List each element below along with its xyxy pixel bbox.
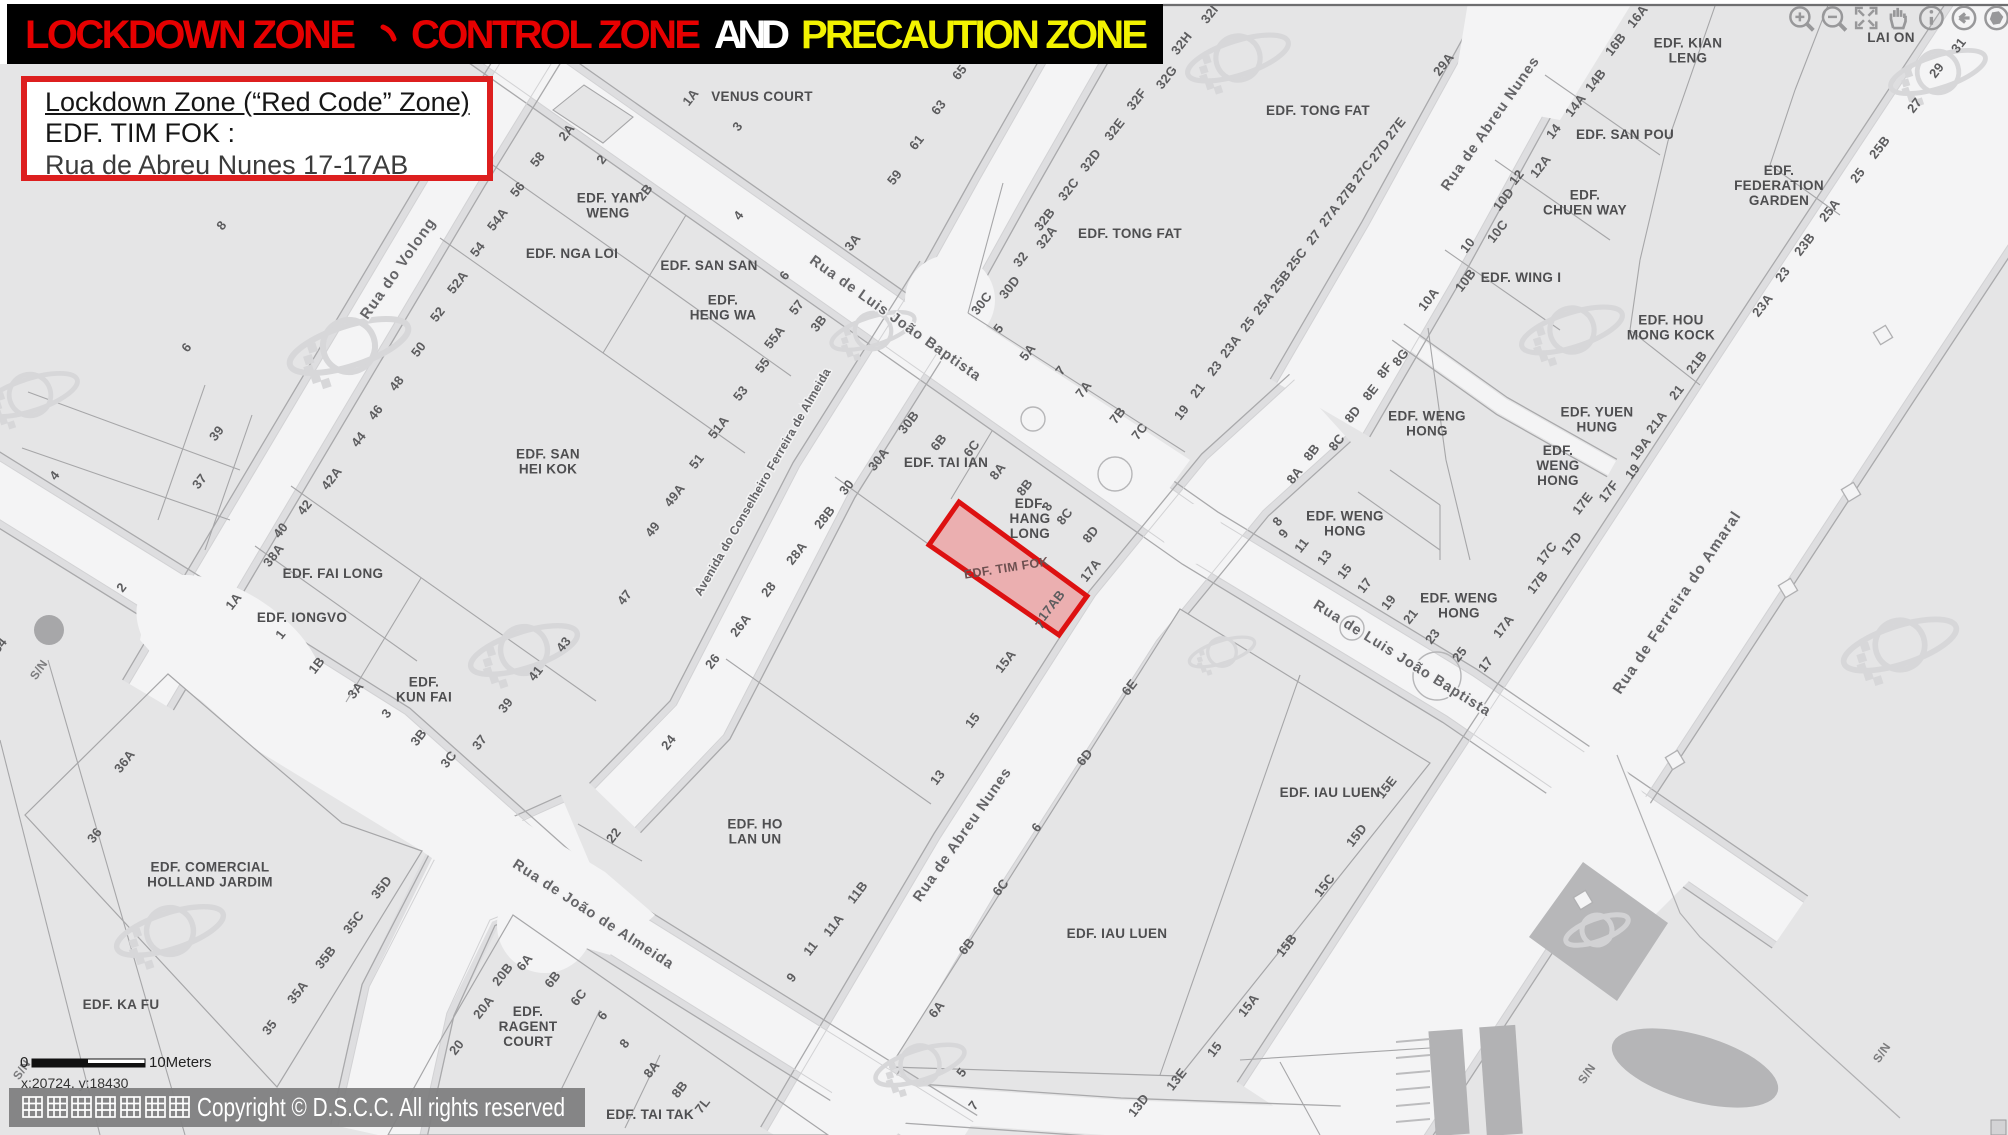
svg-text:VENUS COURT: VENUS COURT [711, 89, 813, 104]
svg-text:EDF. IONGVO: EDF. IONGVO [257, 610, 347, 625]
svg-text:EDF. KA FU: EDF. KA FU [83, 997, 160, 1012]
svg-text:LAI ON: LAI ON [1867, 30, 1915, 45]
svg-text:Copyright © D.S.C.C. All right: Copyright © D.S.C.C. All rights reserved [197, 1092, 565, 1122]
svg-text:EDF.WENGHONG: EDF.WENGHONG [1536, 443, 1579, 488]
svg-text:PRECAUTION ZONE: PRECAUTION ZONE [801, 13, 1148, 57]
svg-text:EDF. TONG FAT: EDF. TONG FAT [1078, 226, 1182, 241]
svg-text:EDF. TONG FAT: EDF. TONG FAT [1266, 103, 1370, 118]
svg-text:LOCKDOWN ZONE: LOCKDOWN ZONE [25, 13, 356, 57]
svg-text:EDF. SANHEI KOK: EDF. SANHEI KOK [516, 447, 580, 477]
svg-text:EDF. WING I: EDF. WING I [1481, 270, 1562, 285]
svg-text:EDF. NGA LOI: EDF. NGA LOI [526, 246, 618, 261]
svg-text:0: 0 [20, 1054, 28, 1071]
svg-text:EDF. FAI LONG: EDF. FAI LONG [283, 566, 384, 581]
svg-text:EDF. IAU LUEN: EDF. IAU LUEN [1280, 785, 1381, 800]
svg-text:AND: AND [714, 13, 790, 57]
svg-text:EDF. SAN POU: EDF. SAN POU [1576, 127, 1674, 142]
svg-text:EDF. HOLAN UN: EDF. HOLAN UN [727, 817, 782, 847]
svg-text:EDF. TAI IAN: EDF. TAI IAN [904, 455, 988, 470]
svg-text:10Meters: 10Meters [149, 1054, 212, 1071]
svg-text:EDF. IAU LUEN: EDF. IAU LUEN [1067, 926, 1168, 941]
svg-text:EDF. HOUMONG KOCK: EDF. HOUMONG KOCK [1627, 313, 1715, 343]
svg-text:EDF. COMERCIALHOLLAND JARDIM: EDF. COMERCIALHOLLAND JARDIM [147, 860, 273, 890]
svg-text:CONTROL ZONE: CONTROL ZONE [411, 13, 701, 57]
svg-text:EDF. TAI TAK: EDF. TAI TAK [606, 1107, 694, 1122]
svg-text:EDF. SAN SAN: EDF. SAN SAN [660, 258, 757, 273]
